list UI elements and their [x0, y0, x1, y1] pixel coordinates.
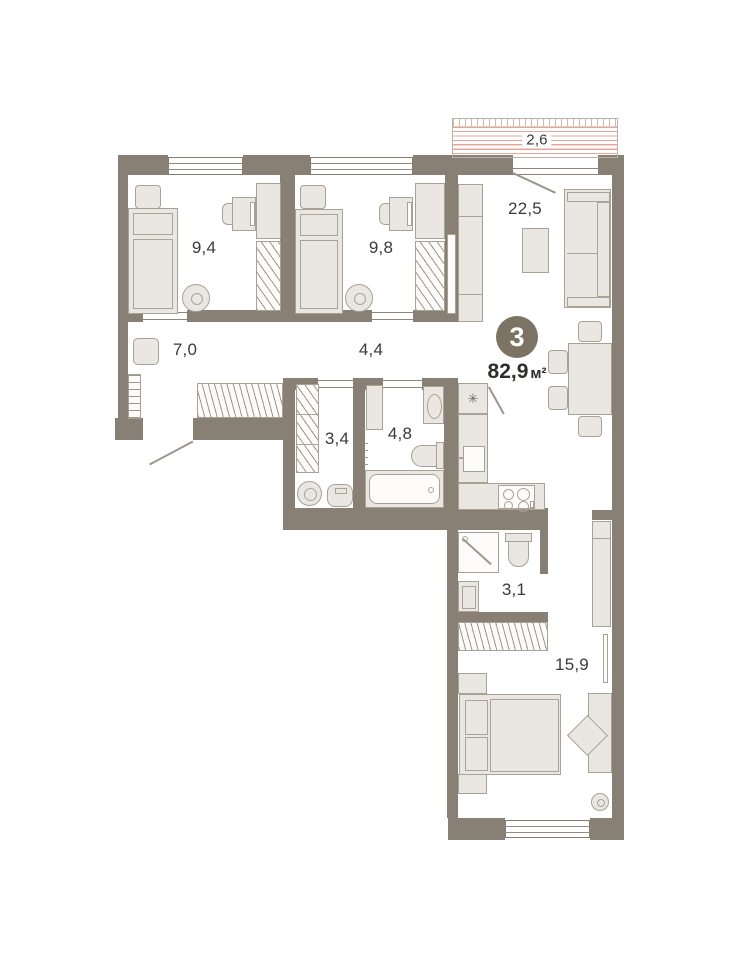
- pouf: [182, 284, 210, 312]
- cabinet: [366, 385, 383, 430]
- nightstand: [458, 673, 487, 694]
- wall-segment: [118, 175, 128, 440]
- faucet: [459, 457, 464, 459]
- door-threshold: [372, 312, 413, 320]
- sofa: [564, 189, 611, 308]
- wall-segment: [612, 175, 624, 840]
- wardrobe: [458, 622, 548, 651]
- total-area: 82,9м²: [488, 360, 547, 384]
- monitor: [407, 202, 412, 226]
- washing-machine: [297, 481, 322, 506]
- kitchen-sink: [463, 446, 485, 472]
- wall-segment: [413, 310, 445, 322]
- monitor: [250, 202, 255, 226]
- kitchen-corner-line: [488, 386, 504, 414]
- pillow: [465, 700, 488, 735]
- pouf: [345, 284, 373, 312]
- door-threshold: [318, 380, 353, 388]
- washer-drum: [304, 488, 317, 501]
- tall-cabinet: [592, 521, 611, 627]
- coffee-table: [522, 228, 549, 273]
- room-label-bedroom-3: 15,9: [555, 655, 589, 675]
- room-label-bedroom-2: 9,8: [369, 238, 393, 258]
- door-threshold: [383, 380, 422, 388]
- stove-control: [530, 501, 534, 508]
- burner: [517, 488, 530, 501]
- radiator: [128, 374, 141, 419]
- pouf-center: [354, 293, 366, 305]
- sofa-armrest: [567, 297, 610, 307]
- wall-segment: [540, 530, 548, 574]
- floor-plan: ✳: [0, 0, 740, 960]
- bed: [459, 694, 561, 775]
- pillow: [300, 214, 338, 236]
- room-label-wc: 3,4: [325, 429, 349, 449]
- wall-segment: [413, 155, 513, 175]
- sofa-armrest: [567, 192, 610, 202]
- cabinet: [135, 185, 161, 209]
- wardrobe: [256, 241, 281, 311]
- total-area-unit: м²: [530, 365, 546, 382]
- cabinet-divider: [459, 216, 482, 217]
- bathtub: [365, 470, 444, 508]
- kitchen-counter: [458, 414, 488, 483]
- bed: [128, 208, 178, 314]
- wall-segment: [280, 175, 295, 322]
- pouf: [591, 793, 609, 811]
- cabinet: [300, 185, 326, 209]
- pillow: [465, 737, 488, 771]
- dining-chair: [578, 416, 602, 437]
- towel-rail: [364, 443, 368, 467]
- washbasin: [423, 386, 444, 424]
- wall-segment: [118, 155, 168, 175]
- burner: [504, 501, 513, 510]
- toilet-bowl: [508, 541, 529, 567]
- wall-segment: [193, 418, 287, 440]
- shelf-divider: [297, 444, 318, 445]
- blanket: [300, 240, 338, 309]
- window: [505, 820, 590, 838]
- dining-chair: [548, 386, 568, 410]
- toilet-detail: [335, 488, 347, 494]
- room-label-hallway: 7,0: [173, 340, 197, 360]
- wardrobe: [197, 383, 283, 418]
- dining-chair: [578, 321, 602, 342]
- total-area-value: 82,9: [488, 360, 529, 383]
- wall-segment: [590, 818, 624, 840]
- room-label-living-kitchen: 22,5: [508, 199, 542, 219]
- washbasin: [458, 581, 479, 612]
- wall-segment: [447, 530, 458, 818]
- bathtub-drain: [428, 487, 434, 493]
- pillow: [133, 213, 173, 235]
- wall-segment: [592, 510, 612, 520]
- stove: [498, 485, 535, 509]
- burner: [503, 489, 514, 500]
- cabinet: [133, 338, 159, 365]
- wall-segment: [115, 418, 143, 440]
- sofa-seat-divider: [567, 253, 597, 254]
- room-label-balcony: 2,6: [522, 133, 551, 148]
- shelf-rack: [296, 384, 319, 473]
- cabinet: [415, 183, 445, 239]
- wardrobe: [415, 241, 445, 311]
- shelf-divider: [297, 414, 318, 415]
- bed: [295, 209, 343, 314]
- cabinet-divider: [593, 538, 610, 539]
- room-label-bedroom-1: 9,4: [192, 238, 216, 258]
- rooms-count-badge: 3: [496, 316, 538, 358]
- room-label-bathroom: 4,8: [388, 424, 412, 444]
- toilet-tank: [436, 442, 444, 469]
- wall-segment: [448, 818, 505, 840]
- blanket: [490, 699, 559, 772]
- duct-niche: [447, 234, 456, 314]
- wall-segment: [598, 155, 624, 175]
- pouf-center: [597, 799, 605, 807]
- fridge: ✳: [458, 383, 488, 414]
- blanket: [133, 239, 173, 309]
- nightstand: [458, 774, 487, 794]
- cabinet-divider: [459, 294, 482, 295]
- burner: [518, 501, 529, 512]
- tall-cabinet: [458, 184, 483, 322]
- wall-segment: [187, 310, 280, 322]
- basin-inner: [427, 394, 442, 419]
- window: [168, 157, 243, 175]
- dining-chair: [548, 350, 568, 374]
- pouf-center: [191, 293, 203, 305]
- entry-door-leaf: [149, 441, 193, 465]
- cabinet: [256, 183, 281, 239]
- room-label-shower-room: 3,1: [502, 580, 526, 600]
- window: [310, 157, 413, 175]
- wall-segment: [283, 508, 548, 530]
- mirror: [603, 634, 608, 683]
- balcony-door-sill: [513, 168, 598, 175]
- balcony-door-leaf: [513, 172, 556, 193]
- sofa-backrest: [597, 202, 610, 297]
- toilet-bowl: [411, 445, 437, 467]
- basin-inner: [462, 586, 476, 609]
- balcony-railing: [453, 119, 617, 127]
- snowflake-icon: ✳: [459, 384, 487, 413]
- kitchen-counter: [458, 483, 545, 510]
- dining-table: [568, 343, 612, 415]
- wall-segment: [243, 155, 310, 175]
- toilet: [327, 484, 353, 507]
- room-label-corridor: 4,4: [359, 340, 383, 360]
